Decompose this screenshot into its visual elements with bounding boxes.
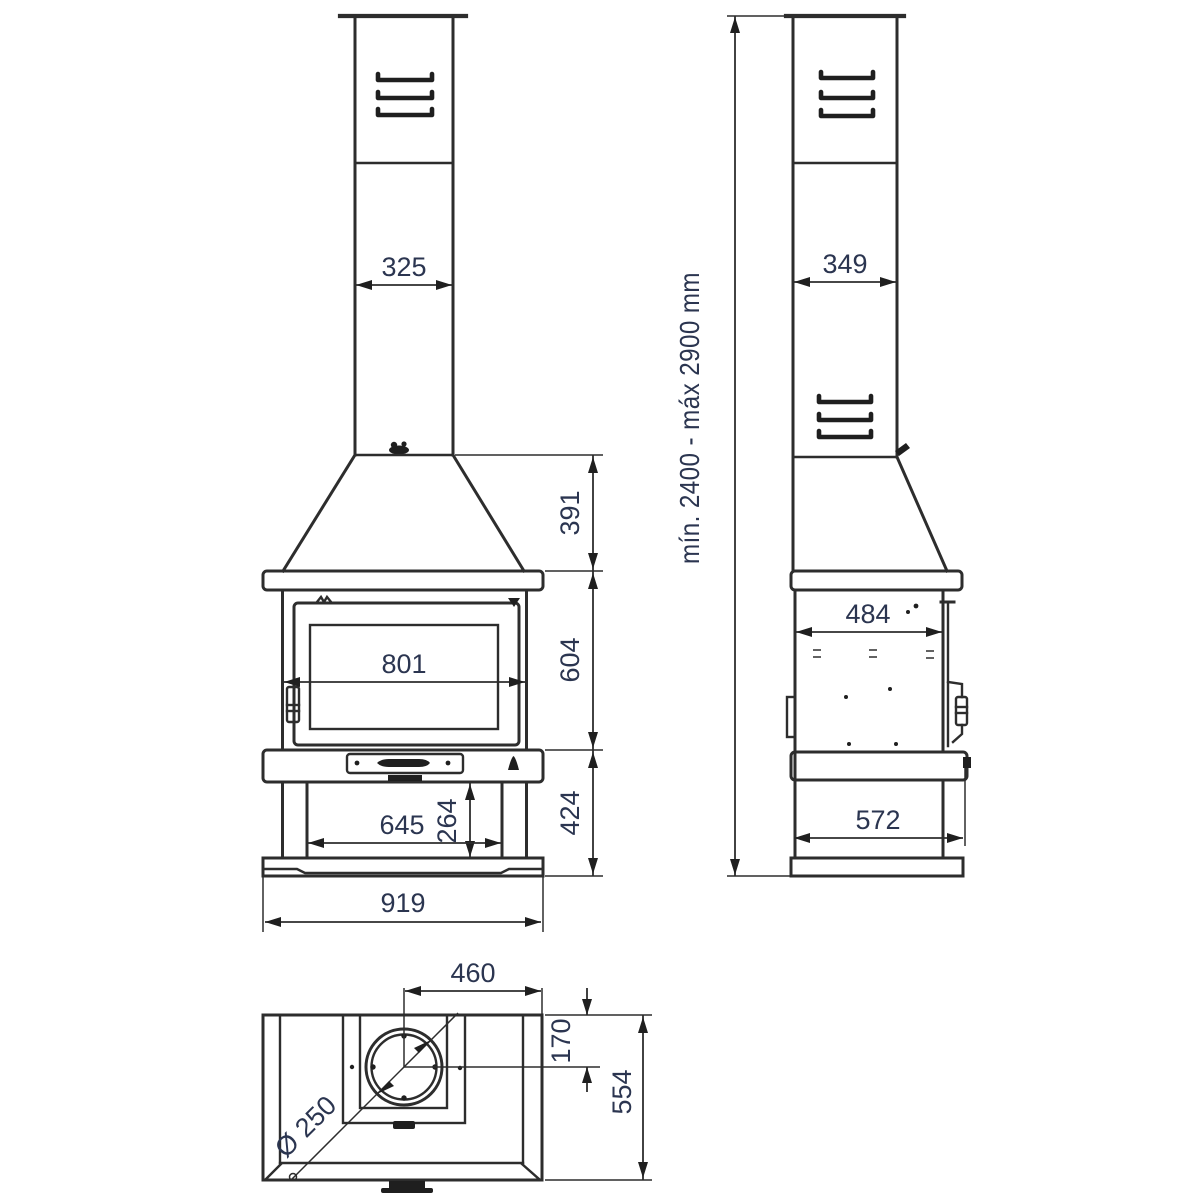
dim-hood-height: 391 <box>555 490 585 535</box>
fireplace-technical-drawing: 325 391 604 424 801 264 <box>0 0 1200 1200</box>
side-view: 349 mín. 2400 - máx 2900 mm 484 572 <box>674 16 971 876</box>
side-lower-shelf <box>791 752 967 780</box>
dim-flue-center-offset: 460 <box>450 958 495 988</box>
side-mantel-shelf <box>791 571 962 590</box>
top-view: Ø 250 460 170 554 <box>263 958 652 1193</box>
front-dimensions: 325 391 604 424 801 264 <box>263 252 603 932</box>
side-louver-vents-lower <box>819 396 871 437</box>
dim-overall-width: 919 <box>380 888 425 918</box>
air-vent-mark <box>317 597 331 602</box>
dim-log-store-height: 264 <box>432 798 462 843</box>
front-mantel-shelf <box>263 571 543 590</box>
side-louver-vents-top <box>821 72 873 116</box>
rear-bracket <box>381 1181 433 1193</box>
hinge-marks <box>813 650 934 746</box>
dim-lower-height: 424 <box>555 790 585 835</box>
front-chimney <box>340 16 466 455</box>
side-base <box>791 858 963 876</box>
front-lower-shelf <box>263 750 543 782</box>
side-latch <box>963 757 971 768</box>
latch-knob <box>508 756 519 770</box>
dim-overall-depth: 554 <box>607 1069 637 1114</box>
side-chimney <box>786 16 910 457</box>
dim-body-depth: 484 <box>845 599 890 629</box>
side-dimensions: 349 mín. 2400 - máx 2900 mm 484 572 <box>674 16 965 876</box>
front-hood <box>263 455 543 590</box>
dim-chimney-depth: 349 <box>822 249 867 279</box>
dim-log-store-width: 645 <box>379 810 424 840</box>
dim-height-range: mín. 2400 - máx 2900 mm <box>674 272 705 564</box>
dim-flue-back-offset: 170 <box>546 1018 576 1063</box>
plate-tab <box>393 1121 415 1129</box>
tray-handle <box>377 759 430 767</box>
shelf-tab <box>388 775 422 781</box>
dim-firebox-height: 604 <box>555 637 585 682</box>
side-hood <box>791 457 962 590</box>
dim-door-width: 801 <box>381 649 426 679</box>
front-view: 325 391 604 424 801 264 <box>263 16 603 932</box>
damper-knob <box>389 441 409 454</box>
dim-base-depth: 572 <box>855 805 900 835</box>
front-louver-vents <box>378 74 432 115</box>
dim-chimney-width: 325 <box>381 252 426 282</box>
drawing-canvas: 325 391 604 424 801 264 <box>0 0 1200 1200</box>
side-door-handle <box>948 682 967 742</box>
base-molding <box>263 869 543 873</box>
